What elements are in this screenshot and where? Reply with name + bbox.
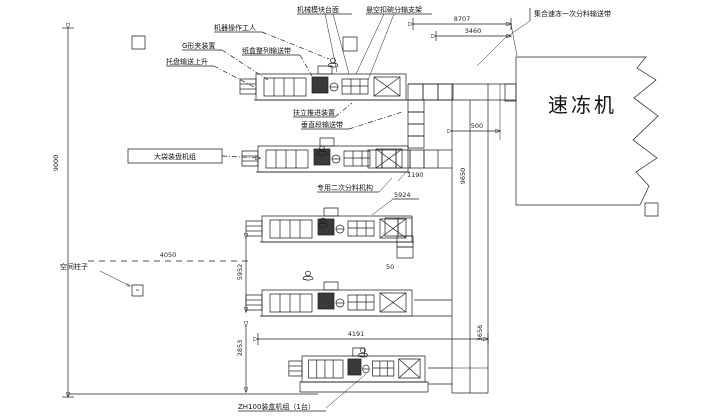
label-secondary-feeder: 专用二次分料机构	[317, 178, 392, 192]
dim-5952: 5952	[236, 264, 244, 281]
dim-5924: 5924	[372, 191, 419, 215]
dim-9000: 9000	[52, 155, 60, 172]
svg-text:5924: 5924	[394, 191, 411, 199]
label-hanging-bracket: 悬空扣碗分输支架	[356, 5, 432, 80]
machine-row-1	[240, 66, 408, 100]
dim-gap-500: 500	[452, 122, 500, 131]
dim-9650: 9650	[459, 168, 467, 185]
svg-text:悬空扣碗分输支架: 悬空扣碗分输支架	[366, 5, 422, 14]
label-space-column: 空间柱子	[60, 262, 130, 286]
svg-text:扶立推进装置: 扶立推进装置	[293, 108, 335, 117]
dim-3460: 3460	[465, 27, 482, 35]
dim-4191: 4191	[348, 330, 365, 338]
column-top-mid	[343, 37, 357, 51]
machine-row-4	[246, 282, 414, 316]
label-big-bag-unit: 大袋装盘机组	[128, 149, 260, 163]
drop-conveyor-row1-row2	[408, 100, 424, 148]
column-bottom-right	[645, 203, 658, 216]
svg-text:ZH100装盒机组（1台）: ZH100装盒机组（1台）	[238, 402, 315, 411]
drawing-canvas: 9000 速冻机	[0, 0, 720, 420]
dim-4050: 4050	[160, 251, 177, 259]
label-push-device: 扶立推进装置	[293, 103, 352, 117]
svg-text:G形夹装置: G形夹装置	[182, 41, 215, 50]
column-mid-left	[132, 285, 143, 296]
svg-text:1190: 1190	[407, 171, 424, 179]
dim-2853: 2853	[236, 340, 244, 357]
dim-1190: 1190	[398, 171, 424, 181]
column-top-left	[132, 36, 145, 49]
svg-text:专用二次分料机构: 专用二次分料机构	[317, 183, 373, 192]
svg-text:机械模块台面: 机械模块台面	[297, 5, 339, 14]
svg-text:垂直段输送带: 垂直段输送带	[301, 120, 343, 129]
dim-offset-4050: 4050	[88, 251, 250, 261]
machine-bottom-zh100	[289, 348, 488, 392]
svg-text:托盘输送上升: 托盘输送上升	[166, 57, 208, 66]
label-box-align: 纸盒整列输送带	[242, 46, 312, 76]
row4-link	[414, 300, 452, 316]
svg-text:集合速冻一次分料输送带: 集合速冻一次分料输送带	[534, 9, 611, 18]
dim-left-height: 9000	[52, 28, 74, 397]
main-vertical-conveyor	[452, 84, 488, 393]
dim-top-inner: 3460	[436, 27, 511, 41]
dim-8707: 8707	[454, 15, 471, 23]
dim-top-total: 8707	[413, 15, 517, 56]
label-tray-lift: 托盘输送上升	[166, 57, 256, 88]
svg-text:大袋装盘机组: 大袋装盘机组	[154, 152, 196, 161]
freezer-title: 速冻机	[548, 93, 617, 117]
freezer-box: 速冻机	[505, 57, 658, 205]
dim-50: 50	[386, 263, 394, 271]
cad-floorplan-drawing: 9000 速冻机	[0, 0, 720, 420]
svg-text:空间柱子: 空间柱子	[60, 262, 88, 271]
svg-text:纸盒整列输送带: 纸盒整列输送带	[242, 46, 291, 55]
dim-bottom-width: 4191	[258, 330, 488, 345]
worker-row4	[303, 271, 313, 280]
machine-row-3	[246, 208, 414, 242]
machine-row-2	[242, 138, 410, 172]
dim-500: 500	[471, 122, 483, 130]
svg-text:机器操作工人: 机器操作工人	[214, 23, 256, 32]
